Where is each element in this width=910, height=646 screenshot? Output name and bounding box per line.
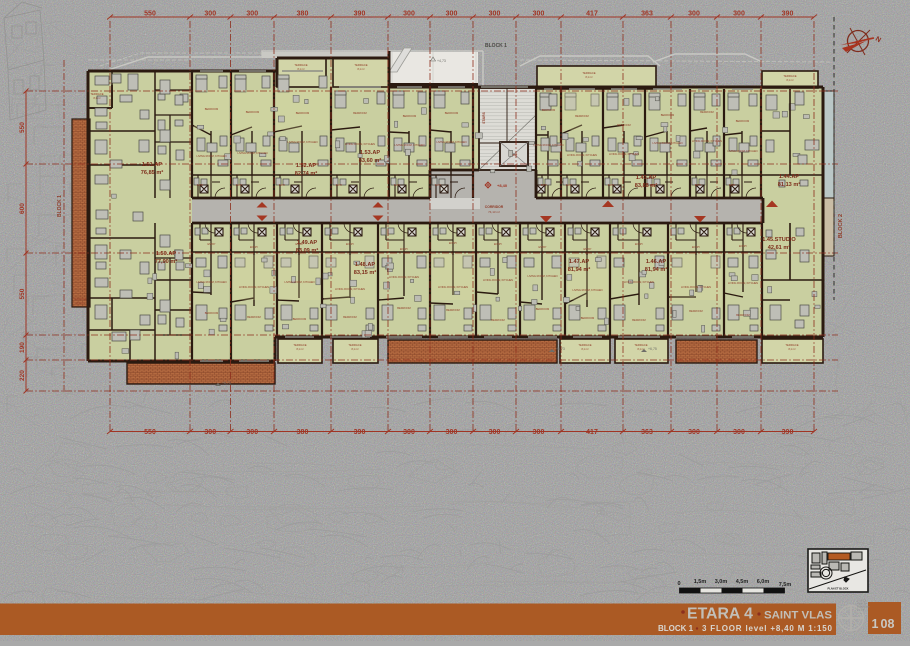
svg-text:220: 220 (19, 370, 26, 381)
svg-text:4,5m: 4,5m (736, 579, 749, 585)
svg-text:8,1 m²: 8,1 m² (788, 348, 795, 351)
svg-text:TERRACE: TERRACE (73, 297, 86, 301)
svg-text:LIVING ROOM, KITCHEN: LIVING ROOM, KITCHEN (624, 280, 654, 284)
svg-text:BEDROOM: BEDROOM (661, 113, 674, 117)
svg-text:300: 300 (733, 429, 745, 436)
svg-text:8,1 m²: 8,1 m² (351, 348, 358, 351)
svg-text:BATH: BATH (394, 184, 400, 187)
svg-text:ENTRY: ENTRY (538, 246, 546, 249)
svg-text:LIVING ROOM, KITCHEN: LIVING ROOM, KITCHEN (389, 275, 419, 279)
svg-text:LIVING ROOM, KITCHEN: LIVING ROOM, KITCHEN (527, 274, 557, 278)
svg-text:300: 300 (446, 429, 458, 436)
svg-text:300: 300 (688, 11, 700, 18)
svg-text:BEDROOM: BEDROOM (700, 110, 713, 114)
svg-text:1: 1 (872, 617, 879, 631)
svg-text:300: 300 (446, 11, 458, 18)
svg-text:LIVING ROOM, KITCHEN: LIVING ROOM, KITCHEN (727, 149, 757, 153)
svg-text:1.48.AP: 1.48.AP (355, 262, 375, 268)
svg-text:ENTRY: ENTRY (739, 245, 747, 248)
svg-text:1,5m: 1,5m (694, 579, 707, 585)
svg-text:BEDROOM: BEDROOM (736, 313, 749, 317)
svg-text:BEDROOM: BEDROOM (446, 308, 459, 312)
svg-text:LIVING ROOM, KITCHEN: LIVING ROOM, KITCHEN (335, 287, 365, 291)
svg-text:BATH: BATH (566, 184, 572, 187)
svg-text:300: 300 (533, 11, 545, 18)
svg-text:LIVING ROOM, KITCHEN: LIVING ROOM, KITCHEN (239, 285, 269, 289)
svg-text:TERRACE: TERRACE (634, 343, 647, 347)
svg-text:BEDROOM: BEDROOM (581, 316, 594, 320)
svg-text:LIVING ROOM, KITCHEN: LIVING ROOM, KITCHEN (436, 140, 466, 144)
svg-text:ENTRY: ENTRY (635, 243, 643, 246)
svg-text:ENTRY: ENTRY (207, 243, 215, 246)
svg-text:BEDROOM: BEDROOM (575, 114, 588, 118)
svg-text:83,60 m²: 83,60 m² (359, 157, 382, 164)
svg-text:ETARA 4: ETARA 4 (687, 606, 753, 623)
svg-text:ENTRY: ENTRY (346, 243, 354, 246)
svg-text:ENTRY: ENTRY (449, 242, 457, 245)
svg-text:1.45.STUDIO: 1.45.STUDIO (762, 237, 796, 243)
svg-text:BEDROOM: BEDROOM (632, 318, 645, 322)
svg-text:380: 380 (297, 429, 309, 436)
svg-text:SAINT VLAS: SAINT VLAS (764, 610, 832, 622)
svg-text:1.43.AP: 1.43.AP (636, 175, 656, 181)
svg-text:STAIRS: STAIRS (482, 112, 486, 123)
svg-text:LIVING ROOM, KITCHEN: LIVING ROOM, KITCHEN (284, 280, 314, 284)
svg-text:LIVING ROOM, KITCHEN: LIVING ROOM, KITCHEN (652, 141, 682, 145)
svg-text:390: 390 (354, 11, 366, 18)
svg-text:1.49.AP: 1.49.AP (297, 240, 317, 246)
svg-text:TERRACE: TERRACE (90, 92, 103, 96)
svg-text:LIVING ROOM, KITCHEN: LIVING ROOM, KITCHEN (394, 143, 424, 147)
svg-text:TERRACE: TERRACE (354, 63, 367, 67)
svg-text:390: 390 (782, 11, 794, 18)
svg-text:BATH: BATH (435, 184, 441, 187)
svg-text:8,1 m²: 8,1 m² (581, 348, 588, 351)
svg-text:2 0 0 5: 2 0 0 5 (857, 609, 865, 612)
svg-text:81,94 m²: 81,94 m² (568, 266, 591, 273)
svg-text:CORRIDOR: CORRIDOR (485, 205, 504, 209)
svg-text:83,88 m²: 83,88 m² (635, 182, 658, 189)
svg-text:LIVING ROOM, KITCHEN: LIVING ROOM, KITCHEN (681, 285, 711, 289)
svg-text:BATH: BATH (695, 184, 701, 187)
svg-text:TERRACE: TERRACE (578, 343, 591, 347)
svg-text:LIVING ROOM, KITCHEN: LIVING ROOM, KITCHEN (572, 288, 602, 292)
svg-text:300: 300 (246, 429, 258, 436)
svg-text:BEDROOM: BEDROOM (293, 317, 306, 321)
svg-text:1.46.AP: 1.46.AP (646, 259, 666, 265)
svg-text:BLOCK 1: BLOCK 1 (57, 195, 63, 217)
svg-text:81,94 m²: 81,94 m² (645, 266, 668, 273)
svg-text:BATH: BATH (541, 184, 547, 187)
svg-text:BEDROOM: BEDROOM (491, 318, 504, 322)
svg-text:BEDROOM: BEDROOM (246, 110, 259, 114)
svg-text:300: 300 (204, 11, 216, 18)
svg-text:3 FLOOR level +8,40 M 1:150: 3 FLOOR level +8,40 M 1:150 (702, 624, 833, 633)
svg-text:550: 550 (144, 11, 156, 18)
svg-text:390: 390 (354, 429, 366, 436)
svg-text:TERRACE: TERRACE (348, 343, 361, 347)
svg-text:LIVING ROOM, KITCHEN: LIVING ROOM, KITCHEN (196, 280, 226, 284)
svg-text:1.47.AP: 1.47.AP (569, 259, 589, 265)
svg-text:550: 550 (19, 122, 26, 133)
svg-text:6,0m: 6,0m (757, 579, 770, 585)
svg-text:BATH: BATH (197, 184, 203, 187)
svg-text:8,1 m²: 8,1 m² (296, 348, 303, 351)
svg-text:417: 417 (586, 11, 598, 18)
svg-text:74,13 m²: 74,13 m² (488, 210, 500, 214)
svg-text:363: 363 (641, 11, 653, 18)
svg-text:1.51.AP: 1.51.AP (142, 162, 162, 168)
svg-text:8,1 m²: 8,1 m² (357, 68, 364, 71)
svg-text:600: 600 (19, 203, 26, 214)
svg-text:380: 380 (297, 11, 309, 18)
svg-text:363: 363 (641, 429, 653, 436)
svg-text:1.44.AP: 1.44.AP (779, 174, 799, 180)
svg-text:TERRACE: TERRACE (785, 343, 798, 347)
svg-text:+6,75: +6,75 (648, 347, 657, 351)
svg-text:BATH: BATH (336, 184, 342, 187)
svg-text:BEDROOM: BEDROOM (445, 111, 458, 115)
svg-text:7,5m: 7,5m (779, 582, 792, 588)
svg-text:BEDROOM: BEDROOM (247, 315, 260, 319)
svg-text:8,1 m²: 8,1 m² (297, 68, 304, 71)
svg-text:TERRACE: TERRACE (293, 343, 306, 347)
svg-text:ENTRY: ENTRY (494, 243, 502, 246)
svg-text:3,0m: 3,0m (715, 579, 728, 585)
svg-text:300: 300 (204, 429, 216, 436)
svg-text:LIVING ROOM, KITCHEN: LIVING ROOM, KITCHEN (533, 143, 563, 147)
svg-text:LIVING ROOM, KITCHEN: LIVING ROOM, KITCHEN (196, 154, 226, 158)
svg-text:BLOCK 1: BLOCK 1 (658, 624, 694, 633)
svg-text:BEDROOM: BEDROOM (736, 119, 749, 123)
svg-text:LIVING ROOM, KITCHEN: LIVING ROOM, KITCHEN (609, 152, 639, 156)
svg-text:LIVING ROOM, KITCHEN: LIVING ROOM, KITCHEN (345, 142, 375, 146)
svg-text:BEDROOM: BEDROOM (617, 123, 630, 127)
svg-text:81,13 m²: 81,13 m² (778, 181, 801, 188)
svg-text:BEDROOM: BEDROOM (343, 315, 356, 319)
svg-text:300: 300 (403, 429, 415, 436)
svg-text:76,85 m²: 76,85 m² (141, 169, 164, 176)
svg-text:ENTRY: ENTRY (583, 248, 591, 251)
svg-text:BEDROOM: BEDROOM (205, 107, 218, 111)
svg-text:BEDROOM: BEDROOM (397, 306, 410, 310)
svg-text:8,1 m²: 8,1 m² (93, 97, 100, 100)
svg-text:LIVING ROOM, KITCHEN: LIVING ROOM, KITCHEN (438, 285, 468, 289)
svg-text:550: 550 (19, 288, 26, 299)
svg-text:BLOCK 1: BLOCK 1 (485, 43, 507, 49)
svg-text:LIVING ROOM, KITCHEN: LIVING ROOM, KITCHEN (567, 153, 597, 157)
svg-text:+6,73: +6,73 (222, 381, 231, 385)
svg-text:PLAN ET BLOCK: PLAN ET BLOCK (827, 587, 848, 591)
svg-text:LIVING ROOM, KITCHEN: LIVING ROOM, KITCHEN (483, 278, 513, 282)
svg-text:LIVING ROOM, KITCHEN: LIVING ROOM, KITCHEN (237, 151, 267, 155)
svg-text:BATH: BATH (608, 184, 614, 187)
svg-text:190: 190 (19, 342, 26, 353)
svg-text:ENTRY: ENTRY (692, 246, 700, 249)
svg-text:300: 300 (533, 429, 545, 436)
svg-text:82,74 m²: 82,74 m² (295, 170, 318, 177)
svg-text:TERRACE: TERRACE (582, 71, 595, 75)
svg-text:ENTRY: ENTRY (250, 246, 258, 249)
svg-text:08: 08 (881, 617, 895, 631)
svg-text:8,1 m²: 8,1 m² (76, 302, 83, 305)
svg-text:+8,40: +8,40 (497, 183, 508, 188)
svg-text:417: 417 (586, 429, 598, 436)
svg-text:390: 390 (782, 429, 794, 436)
svg-text:42,61 m²: 42,61 m² (768, 244, 791, 251)
svg-text:+6,73: +6,73 (556, 347, 565, 351)
svg-text:BEDROOM: BEDROOM (296, 111, 309, 115)
svg-text:BATH: BATH (236, 184, 242, 187)
svg-text:+4,73: +4,73 (437, 59, 446, 63)
svg-text:8,1 m²: 8,1 m² (585, 76, 592, 79)
svg-text:BEDROOM: BEDROOM (353, 111, 366, 115)
svg-text:0: 0 (677, 581, 680, 587)
svg-text:BEDROOM: BEDROOM (403, 114, 416, 118)
svg-text:LIVING ROOM, KITCHEN: LIVING ROOM, KITCHEN (728, 281, 758, 285)
svg-text:83,15 m²: 83,15 m² (354, 269, 377, 276)
svg-text:BATH: BATH (729, 184, 735, 187)
svg-text:1.50.AP: 1.50.AP (156, 251, 176, 257)
svg-text:77,90 m²: 77,90 m² (155, 258, 178, 265)
svg-text:LIVING ROOM, KITCHEN: LIVING ROOM, KITCHEN (692, 139, 722, 143)
svg-text:8,1 m²: 8,1 m² (786, 79, 793, 82)
svg-text:BEDROOM: BEDROOM (205, 311, 218, 315)
svg-text:300: 300 (246, 11, 258, 18)
svg-text:TERRACE: TERRACE (783, 74, 796, 78)
svg-text:TERRACE: TERRACE (294, 63, 307, 67)
svg-text:BLOCK 2: BLOCK 2 (838, 214, 844, 238)
svg-text:LIVING ROOM, KITCHEN: LIVING ROOM, KITCHEN (287, 140, 317, 144)
svg-text:300: 300 (489, 11, 501, 18)
svg-text:300: 300 (688, 429, 700, 436)
svg-text:300: 300 (403, 11, 415, 18)
svg-text:300: 300 (733, 11, 745, 18)
svg-text:BATH: BATH (279, 184, 285, 187)
svg-text:300: 300 (489, 429, 501, 436)
svg-text:BEDROOM: BEDROOM (536, 307, 549, 311)
svg-text:1.53.AP: 1.53.AP (360, 150, 380, 156)
svg-text:ENTRY: ENTRY (400, 248, 408, 251)
svg-text:BEDROOM: BEDROOM (542, 108, 555, 112)
svg-text:550: 550 (144, 429, 156, 436)
svg-text:BEDROOM: BEDROOM (689, 309, 702, 313)
